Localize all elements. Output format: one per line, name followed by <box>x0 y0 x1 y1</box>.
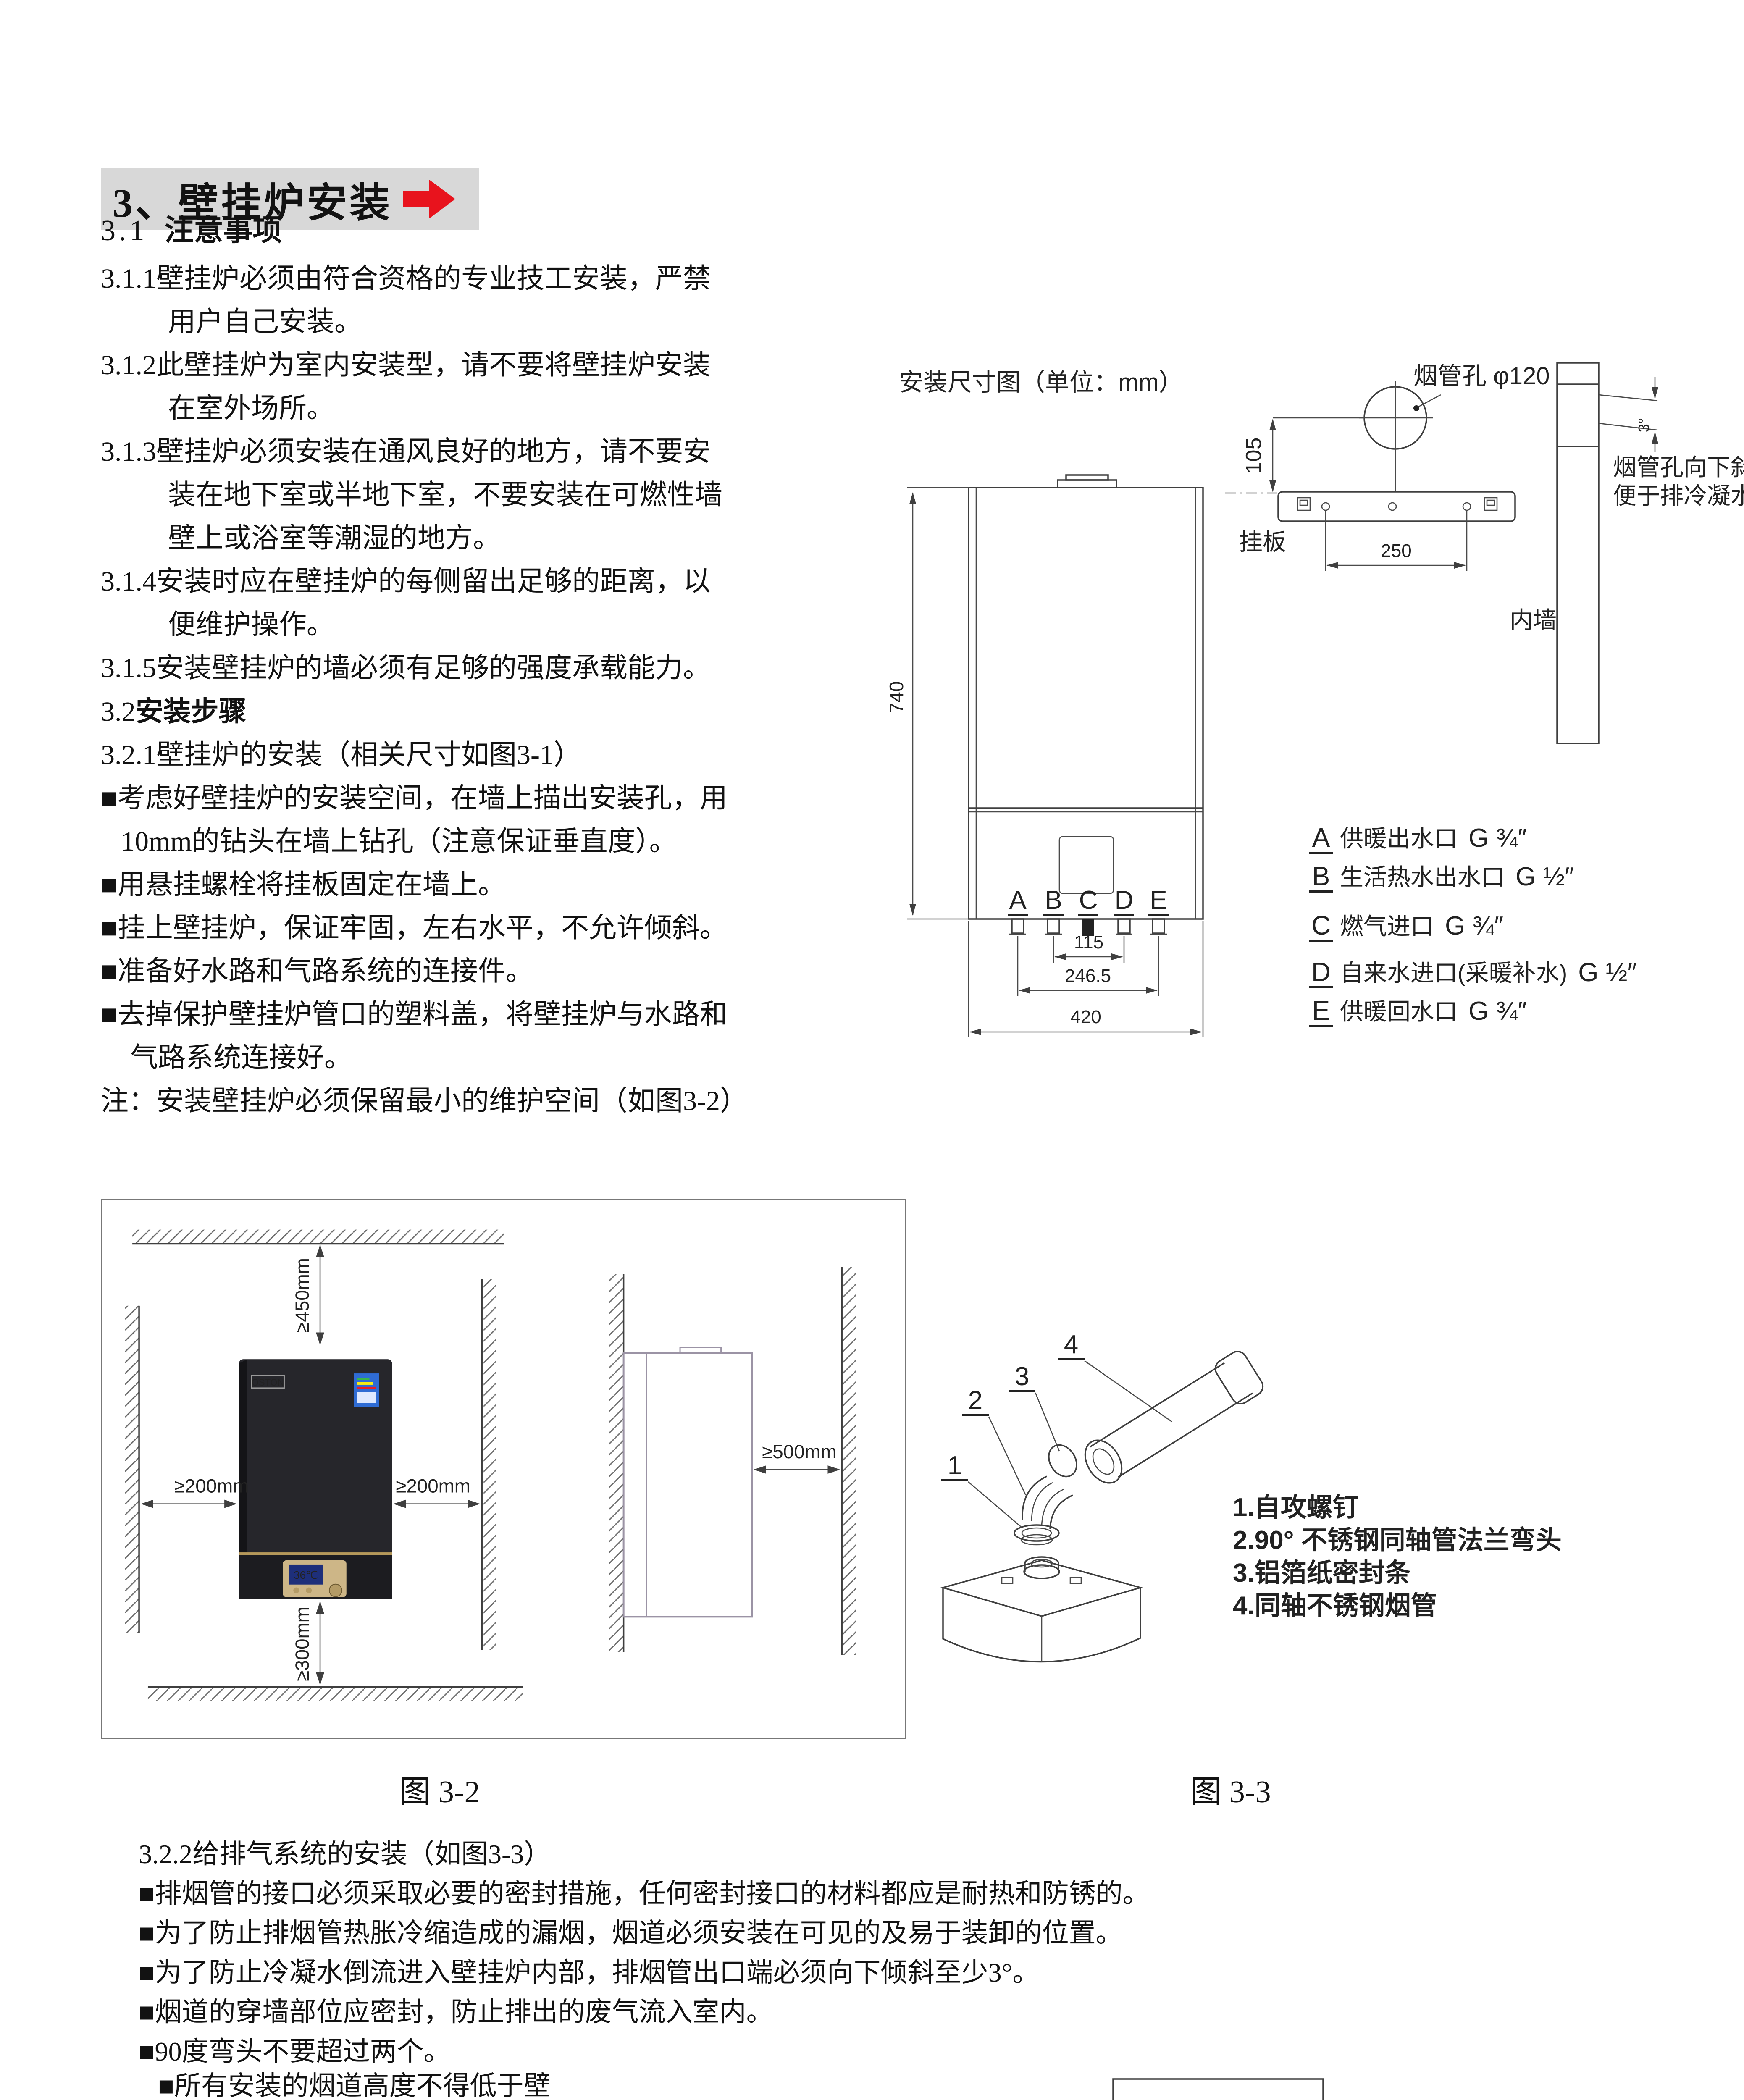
lcd-readout: 36℃ <box>294 1570 318 1581</box>
dim-250: 250 <box>1326 511 1467 571</box>
svg-text:A: A <box>1009 886 1027 915</box>
svg-text:115: 115 <box>1074 932 1103 953</box>
svg-text:4: 4 <box>1064 1330 1078 1359</box>
fig1-title: 安装尺寸图（单位：mm） <box>899 369 1183 396</box>
text-line: 注：安装壁挂炉必须保留最小的维护空间（如图3-2） <box>101 1079 899 1123</box>
port-letters: A B C D E <box>1008 886 1169 916</box>
coaxial-pipe <box>1078 1348 1266 1490</box>
heading-3-1: 3.1注意事项 <box>101 207 282 249</box>
heading-text: 安装步骤 <box>136 696 247 727</box>
svg-text:供暖回水口G ¾″: 供暖回水口G ¾″ <box>1340 997 1527 1026</box>
text-line: 3.1.5安装壁挂炉的墙必须有足够的强度承载能力。 <box>101 646 899 690</box>
ceiling <box>1113 2079 1323 2100</box>
svg-text:供暖出水口G ¾″: 供暖出水口G ¾″ <box>1340 824 1527 853</box>
dim-450: ≥450mm <box>292 1245 320 1344</box>
svg-text:E: E <box>1150 886 1167 915</box>
fig-3-5-outlet-clearance: ≥300mm ≥ 300mm <box>1058 2071 1558 2100</box>
text-line: ■去掉保护壁挂炉管口的塑料盖，将壁挂炉与水路和 <box>101 993 899 1036</box>
text-line: 3.2.2给排气系统的安装（如图3-3） <box>139 1835 1718 1874</box>
dim-300-bottom: ≥300mm <box>292 1602 320 1684</box>
seal-ring <box>1043 1440 1082 1482</box>
svg-text:2: 2 <box>968 1386 982 1415</box>
slope-angle-label: 3° <box>1635 418 1652 432</box>
text-line: ■烟道的穿墙部位应密封，防止排出的废气流入室内。 <box>139 1992 1718 2032</box>
svg-text:C: C <box>1311 910 1331 940</box>
boiler-unit: OSTON 36℃ <box>239 1359 392 1599</box>
svg-text:C: C <box>1079 886 1098 915</box>
text-line: ■所有安装的烟道高度不得低于壁 <box>158 2066 645 2100</box>
fig-3-2-caption: 图 3-2 <box>373 1767 507 1811</box>
dim-200-right: ≥200mm <box>394 1475 479 1504</box>
svg-text:D: D <box>1115 886 1134 915</box>
svg-text:≥200mm: ≥200mm <box>174 1475 249 1497</box>
svg-text:1: 1 <box>948 1451 962 1480</box>
svg-text:3.铝箔纸密封条: 3.铝箔纸密封条 <box>1233 1559 1411 1588</box>
hanging-plate <box>1225 492 1515 521</box>
heading-number: 3.1 <box>101 215 148 247</box>
sec-3-2-2-text: 3.2.2给排气系统的安装（如图3-3） ■排烟管的接口必须采取必要的密封措施，… <box>139 1835 1718 2071</box>
text-line: 用户自己安装。 <box>101 300 899 344</box>
svg-text:1.自攻螺钉: 1.自攻螺钉 <box>1233 1493 1359 1522</box>
fig-3-2-clearances: OSTON 36℃ ≥450mm ≥200mm ≥200mm <box>101 1199 906 1739</box>
svg-text:4.同轴不锈钢烟管: 4.同轴不锈钢烟管 <box>1233 1591 1437 1620</box>
flue-notes-column: ■所有安装的烟道高度不得低于壁 挂炉的排烟接口。 ■最大允许长度（每增加一个90… <box>158 2066 645 2100</box>
heading-number: 3.2 <box>101 696 136 727</box>
text-line: 10mm的钻头在墙上钻孔（注意保证垂直度）。 <box>101 820 899 863</box>
text-line: 3.1.3壁挂炉必须安装在通风良好的地方，请不要安 <box>101 430 899 473</box>
heading-3-2: 3.2安装步骤 <box>101 690 899 733</box>
fig-3-1-installation-dimensions: 安装尺寸图（单位：mm） A B C D E <box>882 328 1744 1067</box>
svg-text:自来水进口(采暖补水)G ½″: 自来水进口(采暖补水)G ½″ <box>1340 958 1636 987</box>
svg-text:246.5: 246.5 <box>1065 966 1111 986</box>
fig-3-3-caption: 图 3-3 <box>1164 1767 1298 1811</box>
boiler-top-box <box>943 1557 1140 1662</box>
port-legend: A 供暖出水口G ¾″ B 生活热水出水口G ½″ C 燃气进口G ¾″ D 自… <box>1309 822 1636 1027</box>
text-line: 3.2.1壁挂炉的安装（相关尺寸如图3-1） <box>101 733 899 777</box>
text-line: 3.1.1壁挂炉必须由符合资格的专业技工安装，严禁 <box>101 257 899 300</box>
svg-text:3: 3 <box>1015 1362 1029 1391</box>
svg-text:≥300mm: ≥300mm <box>292 1606 313 1681</box>
part-callouts: 4 3 2 1 <box>941 1330 1172 1528</box>
slope-note-line1: 烟管孔向下斜3度 <box>1613 454 1744 480</box>
svg-text:2.90° 不锈钢同轴管法兰弯头: 2.90° 不锈钢同轴管法兰弯头 <box>1233 1526 1562 1555</box>
fig-3-3-flue-parts: 4 3 2 1 <box>903 1239 1722 1722</box>
text-line: ■准备好水路和气路系统的连接件。 <box>101 950 899 993</box>
side-view: ≥500mm <box>609 1267 856 1655</box>
red-arrow-icon <box>403 179 458 219</box>
plate-label: 挂板 <box>1239 529 1286 555</box>
svg-text:D: D <box>1311 957 1331 987</box>
svg-text:420: 420 <box>1070 1007 1101 1027</box>
svg-text:E: E <box>1312 995 1330 1026</box>
slope-note-line2: 便于排冷凝水！ <box>1613 483 1744 509</box>
svg-text:生活热水出水口G ½″: 生活热水出水口G ½″ <box>1340 862 1574 891</box>
svg-text:B: B <box>1312 861 1330 891</box>
text-line: ■挂上壁挂炉，保证牢固，左右水平，不允许倾斜。 <box>101 906 899 950</box>
svg-text:250: 250 <box>1381 541 1411 561</box>
dim-105: 105 <box>1242 418 1363 491</box>
text-line: ■考虑好壁挂炉的安装空间，在墙上描出安装孔，用 <box>101 777 899 820</box>
manual-page: 3、壁挂炉安装 3.1注意事项 3.1.1壁挂炉必须由符合资格的专业技工安装，严… <box>0 0 1744 2100</box>
dim-115: 115 <box>1053 932 1124 963</box>
text-line: ■为了防止冷凝水倒流进入壁挂炉内部，排烟管出口端必须向下倾斜至少3°。 <box>139 1953 1718 1992</box>
boiler-front-view <box>969 475 1203 919</box>
svg-text:740: 740 <box>885 681 907 714</box>
svg-text:B: B <box>1045 886 1062 915</box>
text-line: ■为了防止排烟管热胀冷缩造成的漏烟，烟道必须安装在可见的及易于装卸的位置。 <box>139 1914 1718 1953</box>
dim-200-left: ≥200mm <box>142 1475 249 1504</box>
text-line: ■排烟管的接口必须采取必要的密封措施，任何密封接口的材料都应是耐热和防锈的。 <box>139 1874 1718 1914</box>
text-line: 壁上或浴室等潮湿的地方。 <box>101 517 899 560</box>
elbow-90 <box>1014 1476 1073 1545</box>
text-line: 装在地下室或半地下室，不要安装在可燃性墙 <box>101 473 899 517</box>
svg-text:105: 105 <box>1242 438 1266 474</box>
inner-wall-label: 内墙 <box>1510 607 1557 633</box>
boiler-brand: OSTON <box>252 1377 284 1388</box>
text-line: 3.1.2此壁挂炉为室内安装型，请不要将壁挂炉安装 <box>101 344 899 387</box>
svg-text:≥200mm: ≥200mm <box>396 1475 470 1497</box>
svg-text:A: A <box>1312 822 1330 853</box>
parts-list: 1.自攻螺钉 2.90° 不锈钢同轴管法兰弯头 3.铝箔纸密封条 4.同轴不锈钢… <box>1233 1493 1562 1620</box>
svg-text:燃气进口G ¾″: 燃气进口G ¾″ <box>1340 911 1503 940</box>
notes-text-column: 3.1.1壁挂炉必须由符合资格的专业技工安装，严禁 用户自己安装。 3.1.2此… <box>101 257 899 1123</box>
text-line: 便维护操作。 <box>101 603 899 646</box>
text-line: ■用悬挂螺栓将挂板固定在墙上。 <box>101 863 899 906</box>
svg-text:≥500mm: ≥500mm <box>762 1441 837 1462</box>
text-line: 气路系统连接好。 <box>101 1036 899 1079</box>
flue-hole <box>1359 381 1441 492</box>
dim-740: 740 <box>885 488 969 919</box>
text-line: 3.1.4安装时应在壁挂炉的每侧留出足够的距离，以 <box>101 560 899 603</box>
text-line: 在室外场所。 <box>101 387 899 430</box>
flue-hole-label: 烟管孔 φ120 <box>1413 362 1550 390</box>
svg-text:≥450mm: ≥450mm <box>292 1258 313 1333</box>
heading-text: 注意事项 <box>165 214 282 247</box>
